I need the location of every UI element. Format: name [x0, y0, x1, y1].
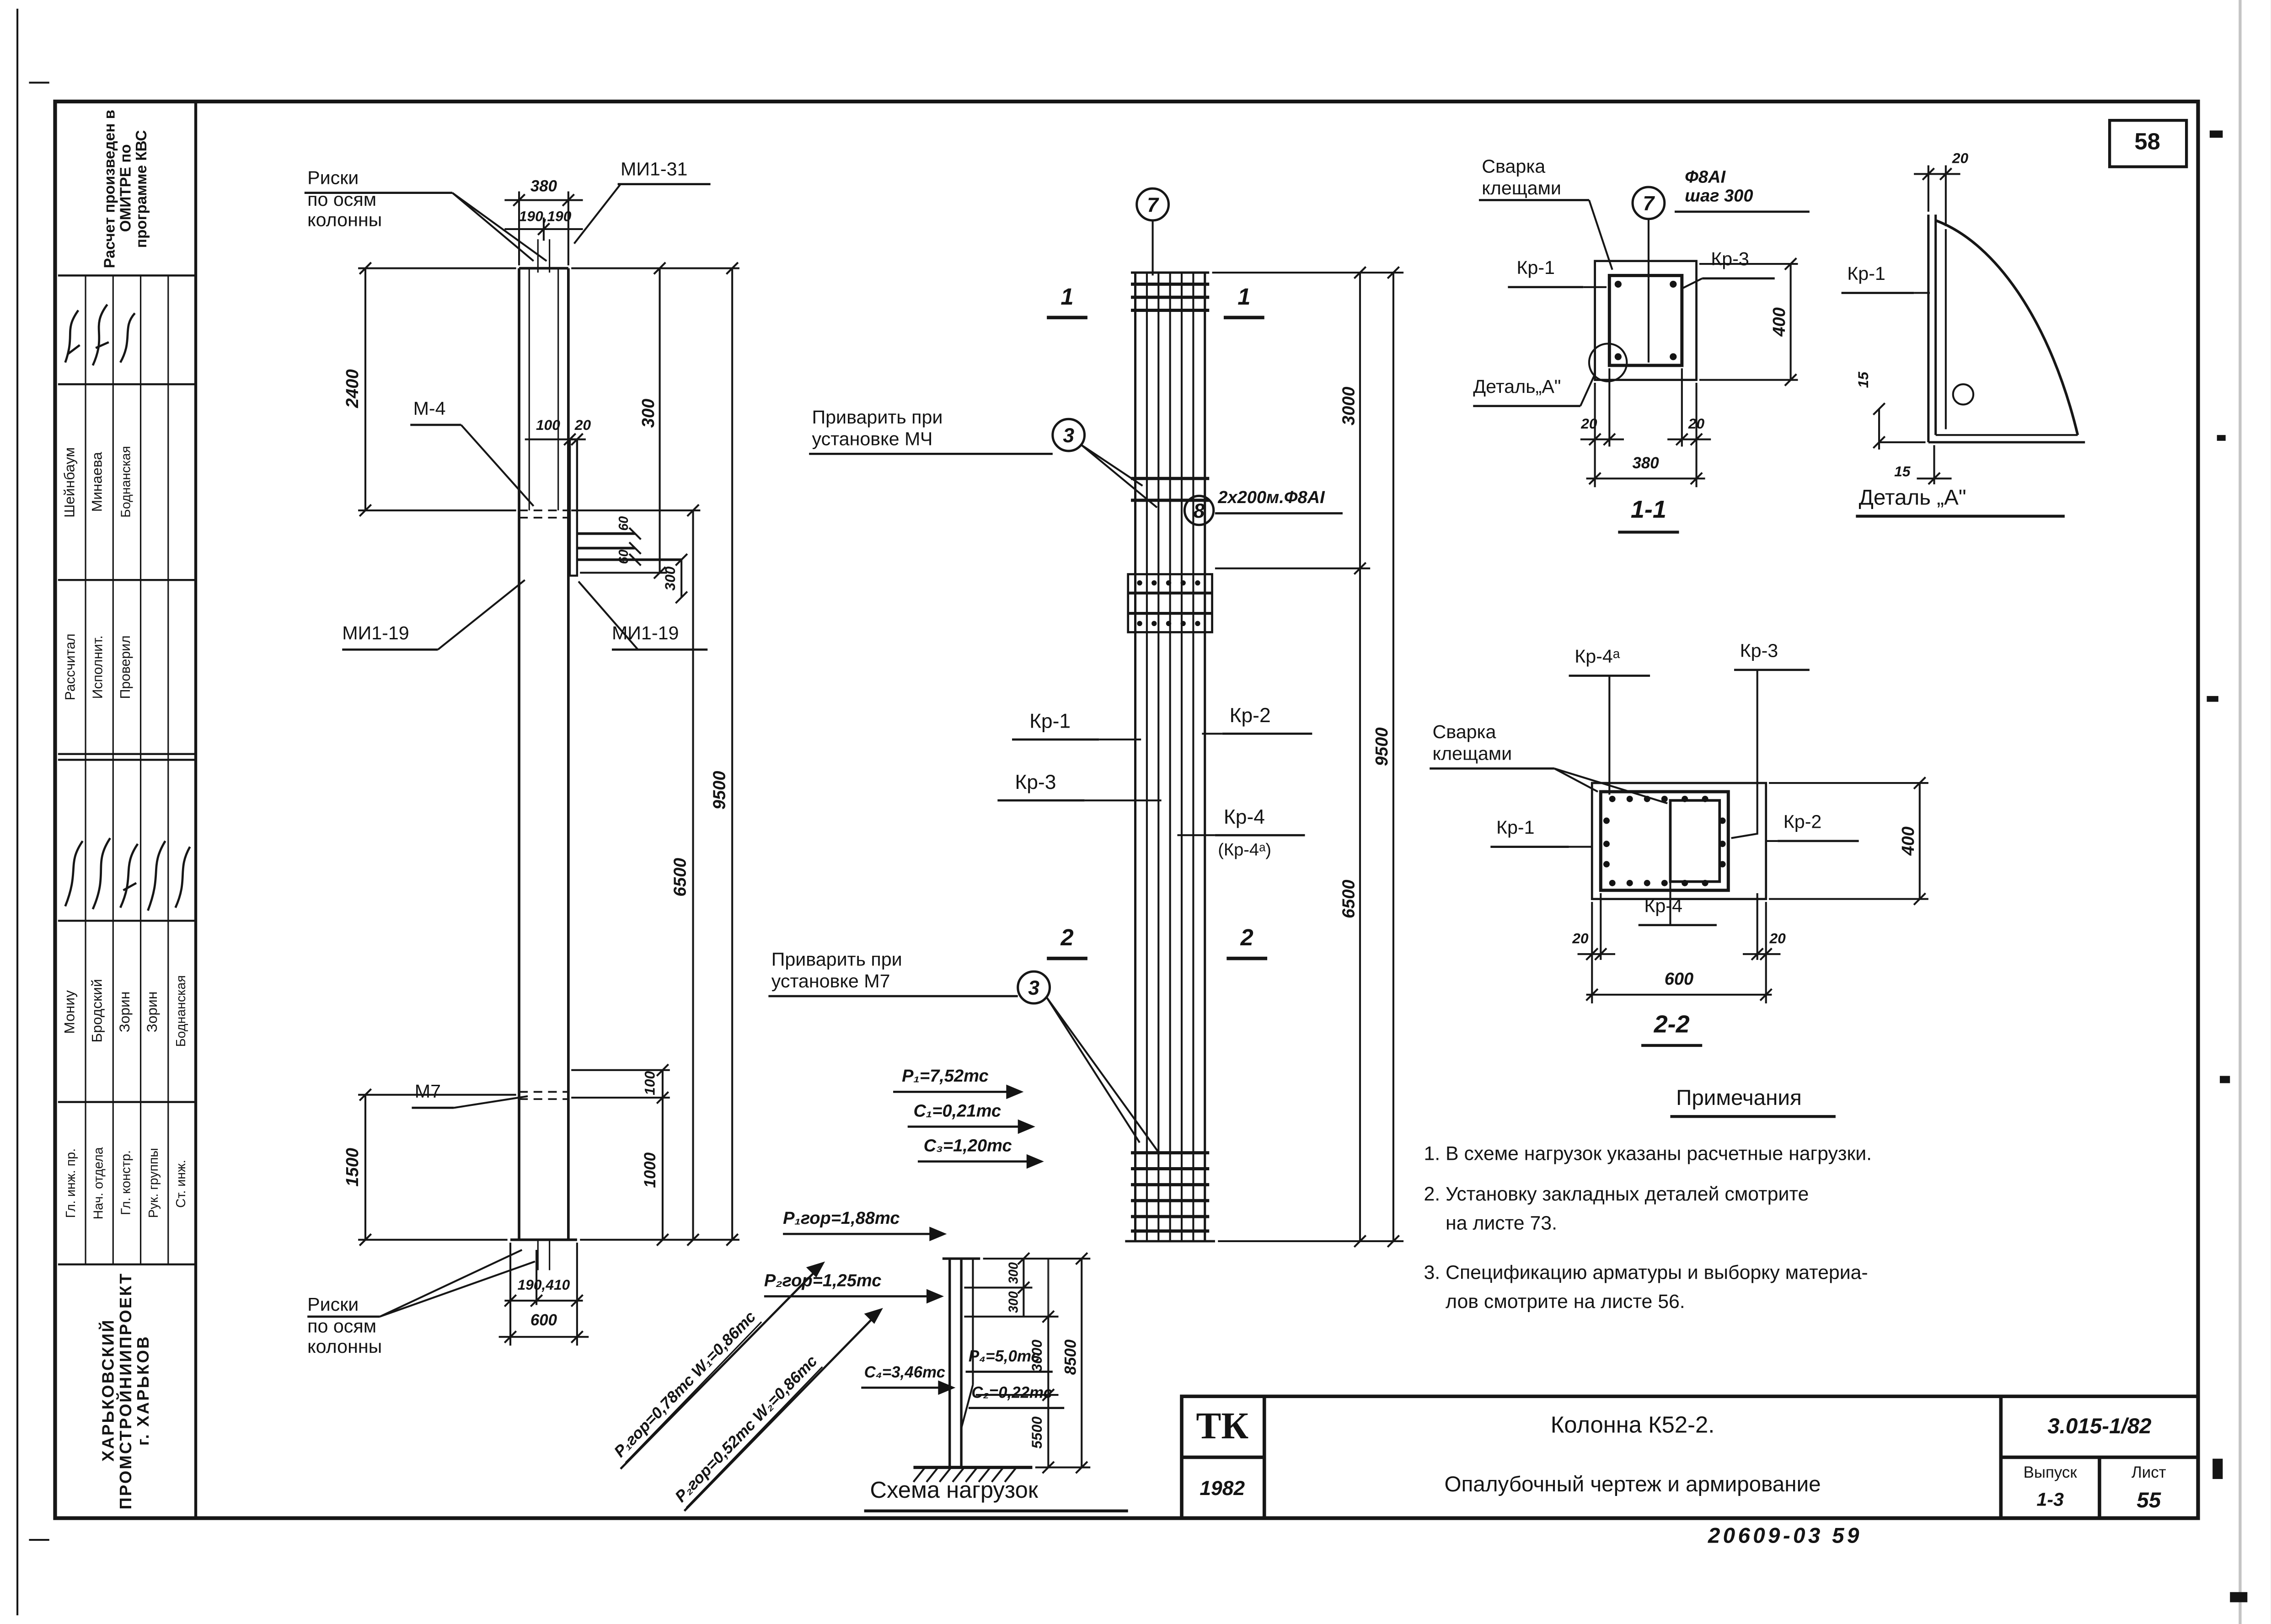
note-item-3: 3. Спецификацию арматуры и выборку матер… — [1424, 1259, 1868, 1315]
label-kr1-section22: Кр-1 — [1496, 818, 1535, 839]
bars-note: 2х200м.Ф8АІ — [1218, 488, 1324, 508]
callout-3-bottom: 3 — [1028, 976, 1039, 999]
label-mi1-19-right: МИ1-19 — [612, 623, 679, 644]
load-dim-3000: 3000 — [1030, 1340, 1046, 1372]
label-kr2-section22: Кр-2 — [1784, 812, 1822, 833]
callout-8: 8 — [1194, 499, 1205, 522]
label-kr1: Кр-1 — [1029, 711, 1071, 734]
dim-2400: 2400 — [342, 369, 362, 408]
load-c4: С₄=3,46тс — [864, 1364, 945, 1382]
dim-15-left-detail: 15 — [1857, 372, 1873, 388]
load-dim-5500: 5500 — [1030, 1416, 1046, 1449]
dim-6500-right: 6500 — [1338, 879, 1358, 918]
dim-300-top: 300 — [638, 399, 658, 428]
load-scheme-title: Схема нагрузок — [870, 1479, 1038, 1505]
load-dim-300a: 300 — [1006, 1262, 1021, 1284]
sheet-label: Лист — [2132, 1464, 2166, 1482]
dim-190-190: 190,190 — [519, 209, 572, 225]
dim-20-right-s22: 20 — [1769, 932, 1785, 948]
notes-title: Примечания — [1676, 1088, 1802, 1112]
load-p1: Р₁=7,52тс — [902, 1067, 989, 1087]
elevation-column — [510, 239, 681, 1270]
label-kr4a-section22: Кр-4ᵃ — [1575, 647, 1620, 668]
reinforcement-callout-shapes — [768, 188, 1343, 1154]
risk-label-bottom: Риски по осям колонны — [307, 1295, 382, 1358]
weld-label-1-1: Сварка клещами — [1482, 156, 1561, 198]
label-m4: М-4 — [413, 399, 446, 420]
stamp-name-7: Зорин — [142, 924, 167, 1099]
load-c1: С₁=0,21тс — [913, 1102, 1001, 1122]
callout-7-section: 7 — [1643, 192, 1655, 215]
dim-3000-right: 3000 — [1338, 386, 1358, 425]
note-item-1: 1. В схеме нагрузок указаны расчетные на… — [1424, 1142, 1872, 1164]
label-m7: М7 — [415, 1082, 441, 1103]
label-mi1-19-left: МИ1-19 — [342, 623, 409, 644]
title-block-year: 1982 — [1200, 1476, 1245, 1500]
section-mark-2-left: 2 — [1061, 927, 1073, 953]
issue-label: Выпуск — [2024, 1464, 2077, 1482]
stamp-name-3: Боднанская — [114, 387, 139, 577]
weld-note-top: Приварить при установке МЧ — [812, 407, 943, 450]
doc-code: 20609-03 59 — [1708, 1525, 1862, 1549]
load-dim-300b: 300 — [1006, 1291, 1021, 1313]
dim-20-detail: 20 — [1952, 151, 1968, 167]
dim-20: 20 — [575, 418, 591, 434]
stamp-name-4: Мониу — [59, 924, 84, 1099]
stamp-role-5: Нач. отдела — [87, 1105, 112, 1261]
callout-7: 7 — [1147, 193, 1158, 216]
drawing-linework — [0, 0, 2271, 1624]
reinforcement-column — [1125, 273, 1215, 1241]
load-p4: Р₄=5,0тс — [969, 1349, 1040, 1367]
dim-1500: 1500 — [342, 1148, 362, 1187]
dim-15-bottom-detail: 15 — [1894, 465, 1910, 481]
elevation-dimensions — [358, 192, 739, 1346]
stamp-name-8: Боднанская — [170, 924, 194, 1099]
stamp-role-2: Исполнит. — [87, 583, 112, 751]
dim-190-410: 190,410 — [518, 1278, 570, 1294]
label-kr1-section11: Кр-1 — [1516, 258, 1555, 279]
label-kr3: Кр-3 — [1015, 772, 1056, 794]
stamp-role-8: Ст. инж. — [170, 1105, 194, 1261]
sheet-value: 55 — [2137, 1489, 2161, 1513]
section-mark-2-right: 2 — [1241, 927, 1253, 953]
load-p1gor: Р₁гор=1,88тс — [783, 1209, 900, 1229]
drawing-sheet: Расчет произведен в ОМИТРЕ по программе … — [0, 0, 2271, 1624]
detail-a-reference: Деталь„А" — [1473, 377, 1561, 398]
dim-600-bottom: 600 — [530, 1312, 557, 1329]
issue-value: 1-3 — [2036, 1489, 2064, 1511]
weld-label-2-2: Сварка клещами — [1432, 722, 1512, 764]
detail-a-figure — [1842, 165, 2085, 516]
dim-20-left-s11: 20 — [1581, 417, 1597, 433]
org-logo: ТК — [1196, 1405, 1248, 1448]
caption-1-1: 1-1 — [1631, 496, 1666, 525]
stamp-role-6: Гл. констр. — [114, 1105, 139, 1261]
rebar-note-1-1: Ф8АІ шаг 300 — [1685, 168, 1753, 207]
stamp-role-3: Проверил — [114, 583, 139, 751]
dim-60-b: 60 — [616, 550, 631, 564]
load-p2gor: Р₂гор=1,25тс — [764, 1272, 882, 1292]
section-mark-1-left: 1 — [1061, 286, 1073, 312]
dim-100-bottom: 100 — [643, 1071, 659, 1095]
weld-note-bottom: Приварить при установке М7 — [771, 950, 902, 992]
callout-3-top: 3 — [1063, 423, 1074, 447]
dim-9500-left: 9500 — [709, 771, 729, 810]
stamp-name-2: Минаева — [87, 387, 112, 577]
stamp-role-1: Рассчитал — [59, 583, 84, 751]
load-arrows — [621, 1085, 1128, 1511]
risk-label-top: Риски по осям колонны — [307, 168, 382, 231]
dim-400-section22: 400 — [1898, 826, 1918, 856]
load-c2: С₂=0,22тс — [971, 1385, 1052, 1403]
dim-380-s11: 380 — [1632, 456, 1659, 473]
caption-2-2: 2-2 — [1654, 1011, 1690, 1040]
dim-20-right-s11: 20 — [1688, 417, 1704, 433]
sheet-frame — [17, 9, 2198, 1615]
sheet-number-top-right: 58 — [2134, 130, 2160, 156]
drawing-title-line1: Колонна К52-2. — [1551, 1414, 1715, 1440]
stamp-name-5: Бродский — [87, 924, 112, 1099]
label-kr4a: (Кр-4ᵃ) — [1218, 841, 1271, 861]
stamp-role-4: Гл. инж. пр. — [59, 1105, 84, 1261]
scan-artifacts — [2207, 0, 2248, 1624]
load-c3: С₃=1,20тс — [924, 1137, 1012, 1157]
label-kr2: Кр-2 — [1230, 705, 1271, 728]
label-kr1-detail: Кр-1 — [1847, 264, 1885, 285]
dim-400-section11: 400 — [1769, 307, 1789, 337]
note-item-2: 2. Установку закладных деталей смотрите … — [1424, 1180, 1809, 1237]
stamp-name-6: Зорин — [114, 924, 139, 1099]
dim-6500-left: 6500 — [670, 858, 690, 897]
label-kr4: Кр-4 — [1224, 806, 1265, 829]
label-kr3-section22: Кр-3 — [1740, 641, 1778, 662]
dim-20-left-s22: 20 — [1572, 932, 1588, 948]
caption-detail-a: Деталь „А" — [1859, 487, 1966, 511]
dim-300-console: 300 — [664, 567, 680, 591]
dim-1000: 1000 — [643, 1152, 660, 1188]
dim-100: 100 — [536, 418, 560, 434]
dim-600-s22: 600 — [1665, 969, 1694, 989]
stamp-calc-note: Расчет произведен в ОМИТРЕ по программе … — [61, 107, 193, 270]
stamp-role-7: Рук. группы — [142, 1105, 167, 1261]
load-dim-8500: 8500 — [1063, 1340, 1080, 1375]
drawing-title-line2: Опалубочный чертеж и армирование — [1444, 1473, 1821, 1497]
dim-60-a: 60 — [616, 516, 631, 531]
label-kr3-section11: Кр-3 — [1711, 249, 1749, 270]
dim-9500-right: 9500 — [1371, 727, 1392, 766]
stamp-name-1: Шейнбаум — [59, 387, 84, 577]
section-mark-1-right: 1 — [1237, 286, 1250, 312]
series-number: 3.015-1/82 — [2047, 1415, 2151, 1439]
label-mi1-31: МИ1-31 — [621, 160, 687, 181]
label-kr4-section22: Кр-4 — [1644, 896, 1682, 917]
section-1-1-figure — [1473, 187, 1810, 532]
dim-380: 380 — [530, 178, 557, 196]
stamp-organization: ХАРЬКОВСКИЙ ПРОМСТРОЙНИИПРОЕКТ г. ХАРЬКО… — [61, 1267, 193, 1514]
